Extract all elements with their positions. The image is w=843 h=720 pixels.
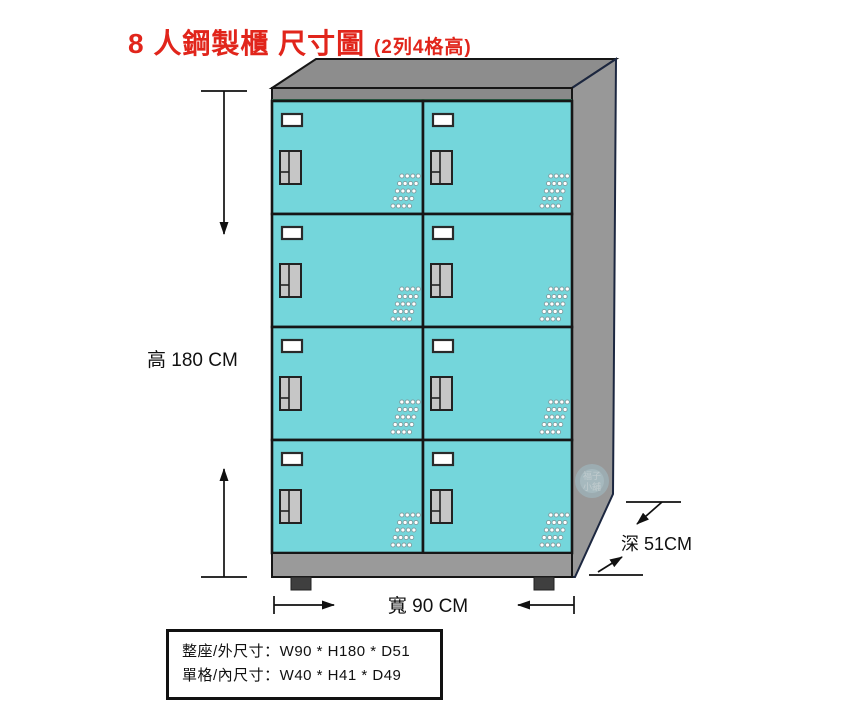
vent-hole xyxy=(399,196,403,200)
vent-hole xyxy=(403,181,407,185)
vent-hole xyxy=(411,287,415,291)
vent-hole xyxy=(540,204,544,208)
vent-hole xyxy=(391,204,395,208)
vent-hole xyxy=(555,415,559,419)
vent-hole xyxy=(548,535,552,539)
vent-hole xyxy=(561,528,565,532)
vent-hole xyxy=(403,407,407,411)
vent-hole xyxy=(395,302,399,306)
vent-hole xyxy=(391,543,395,547)
door-handle xyxy=(431,490,452,523)
vent-hole xyxy=(405,513,409,517)
vent-hole xyxy=(561,415,565,419)
vent-hole xyxy=(552,407,556,411)
foot-left xyxy=(291,577,311,590)
watermark-line-1: 福子 xyxy=(583,470,601,481)
vent-hole xyxy=(416,513,420,517)
vent-hole xyxy=(549,287,553,291)
vent-hole xyxy=(406,189,410,193)
vent-hole xyxy=(407,317,411,321)
vent-hole xyxy=(414,181,418,185)
vent-hole xyxy=(402,317,406,321)
vent-hole xyxy=(553,422,557,426)
vent-hole xyxy=(403,520,407,524)
side-panel xyxy=(572,59,616,577)
vent-hole xyxy=(411,400,415,404)
vent-hole xyxy=(395,415,399,419)
vent-hole xyxy=(550,302,554,306)
vent-hole xyxy=(406,415,410,419)
width-label: 寬 90 CM xyxy=(388,595,468,617)
vent-hole xyxy=(542,309,546,313)
vent-hole xyxy=(411,513,415,517)
vent-hole xyxy=(400,287,404,291)
vent-hole xyxy=(565,174,569,178)
vent-hole xyxy=(407,204,411,208)
vent-hole xyxy=(404,422,408,426)
vent-hole xyxy=(563,294,567,298)
vent-hole xyxy=(391,317,395,321)
name-card-slot xyxy=(282,114,302,126)
vent-hole xyxy=(549,400,553,404)
vent-hole xyxy=(398,407,402,411)
vent-hole xyxy=(399,535,403,539)
vent-hole xyxy=(414,407,418,411)
door-handle xyxy=(280,264,301,297)
vent-hole xyxy=(563,520,567,524)
vent-hole xyxy=(410,196,414,200)
vent-hole xyxy=(414,294,418,298)
vent-hole xyxy=(551,543,555,547)
watermark-seal: 福子 小舖 xyxy=(575,464,609,498)
vent-hole xyxy=(561,189,565,193)
vent-hole xyxy=(404,309,408,313)
vent-hole xyxy=(405,287,409,291)
vent-hole xyxy=(560,513,564,517)
vent-hole xyxy=(555,189,559,193)
foot-right xyxy=(534,577,554,590)
vent-hole xyxy=(559,309,563,313)
vent-hole xyxy=(551,204,555,208)
vent-hole xyxy=(411,174,415,178)
vent-hole xyxy=(559,535,563,539)
base-plinth xyxy=(272,553,572,577)
vent-hole xyxy=(410,309,414,313)
vent-hole xyxy=(540,543,544,547)
vent-hole xyxy=(556,317,560,321)
vent-hole xyxy=(548,422,552,426)
door-handle xyxy=(431,151,452,184)
vent-hole xyxy=(414,520,418,524)
vent-hole xyxy=(401,415,405,419)
vent-hole xyxy=(560,400,564,404)
vent-hole xyxy=(416,400,420,404)
vent-hole xyxy=(560,287,564,291)
vent-hole xyxy=(402,204,406,208)
vent-hole xyxy=(402,430,406,434)
door-handle xyxy=(280,377,301,410)
vent-hole xyxy=(544,189,548,193)
vent-hole xyxy=(556,430,560,434)
vent-hole xyxy=(563,181,567,185)
vent-hole xyxy=(410,535,414,539)
spec-line-outer: 整座/外尺寸：W90 * H180 * D51 xyxy=(182,640,440,664)
vent-hole xyxy=(550,189,554,193)
name-card-slot xyxy=(433,227,453,239)
watermark-line-2: 小舖 xyxy=(583,481,601,492)
vent-hole xyxy=(393,196,397,200)
vent-hole xyxy=(547,407,551,411)
vent-hole xyxy=(396,430,400,434)
vent-hole xyxy=(552,181,556,185)
name-card-slot xyxy=(282,227,302,239)
vent-hole xyxy=(409,181,413,185)
vent-hole xyxy=(393,309,397,313)
vent-hole xyxy=(554,174,558,178)
name-card-slot xyxy=(433,453,453,465)
vent-hole xyxy=(551,317,555,321)
vent-hole xyxy=(540,430,544,434)
vent-hole xyxy=(549,513,553,517)
vent-hole xyxy=(405,400,409,404)
vent-hole xyxy=(556,204,560,208)
vent-hole xyxy=(549,174,553,178)
vent-hole xyxy=(553,309,557,313)
vent-hole xyxy=(548,309,552,313)
vent-hole xyxy=(554,400,558,404)
vent-hole xyxy=(398,294,402,298)
vent-hole xyxy=(550,528,554,532)
vent-hole xyxy=(398,181,402,185)
height-label: 高 180 CM xyxy=(147,349,238,371)
vent-hole xyxy=(404,535,408,539)
vent-hole xyxy=(406,528,410,532)
vent-hole xyxy=(558,181,562,185)
vent-hole xyxy=(545,543,549,547)
vent-hole xyxy=(555,528,559,532)
vent-hole xyxy=(553,196,557,200)
vent-hole xyxy=(559,422,563,426)
vent-hole xyxy=(412,528,416,532)
vent-hole xyxy=(565,287,569,291)
name-card-slot xyxy=(433,340,453,352)
vent-hole xyxy=(542,422,546,426)
vent-hole xyxy=(560,174,564,178)
vent-hole xyxy=(550,415,554,419)
name-card-slot xyxy=(433,114,453,126)
vent-hole xyxy=(395,528,399,532)
vent-hole xyxy=(544,302,548,306)
vent-hole xyxy=(393,535,397,539)
vent-hole xyxy=(556,543,560,547)
vent-hole xyxy=(400,513,404,517)
door-handle xyxy=(280,151,301,184)
top-face xyxy=(272,59,616,88)
vent-hole xyxy=(545,317,549,321)
vent-hole xyxy=(396,317,400,321)
vent-hole xyxy=(405,174,409,178)
height-dimension xyxy=(201,91,247,577)
vent-hole xyxy=(565,513,569,517)
vent-hole xyxy=(396,543,400,547)
vent-hole xyxy=(542,535,546,539)
vent-hole xyxy=(406,302,410,306)
door-handle xyxy=(431,377,452,410)
depth-label: 深 51CM xyxy=(621,534,692,554)
spec-line-inner: 單格/內尺寸：W40 * H41 * D49 xyxy=(182,664,440,688)
name-card-slot xyxy=(282,340,302,352)
vent-hole xyxy=(398,520,402,524)
vent-hole xyxy=(416,174,420,178)
vent-hole xyxy=(554,513,558,517)
cabinet-diagram: 福子 小舖 高 180 CM 寬 90 CM 深 51CM xyxy=(0,0,843,720)
vent-hole xyxy=(401,302,405,306)
vent-hole xyxy=(396,204,400,208)
vent-hole xyxy=(409,407,413,411)
vent-hole xyxy=(400,174,404,178)
depth-upper-arrow xyxy=(637,502,662,524)
vent-hole xyxy=(412,415,416,419)
depth-lower-arrow xyxy=(598,557,622,572)
vent-hole xyxy=(544,415,548,419)
vent-hole xyxy=(558,294,562,298)
vent-hole xyxy=(403,294,407,298)
vent-hole xyxy=(547,181,551,185)
vent-hole xyxy=(542,196,546,200)
name-card-slot xyxy=(282,453,302,465)
vent-hole xyxy=(553,535,557,539)
vent-hole xyxy=(551,430,555,434)
vent-hole xyxy=(540,317,544,321)
vent-hole xyxy=(395,189,399,193)
vent-hole xyxy=(412,302,416,306)
vent-hole xyxy=(563,407,567,411)
vent-hole xyxy=(391,430,395,434)
vent-hole xyxy=(400,400,404,404)
vent-hole xyxy=(401,189,405,193)
vent-hole xyxy=(399,309,403,313)
vent-hole xyxy=(401,528,405,532)
vent-hole xyxy=(412,189,416,193)
vent-hole xyxy=(555,302,559,306)
vent-hole xyxy=(410,422,414,426)
vent-hole xyxy=(402,543,406,547)
vent-hole xyxy=(407,430,411,434)
vent-hole xyxy=(561,302,565,306)
vent-hole xyxy=(407,543,411,547)
vent-hole xyxy=(554,287,558,291)
vent-hole xyxy=(416,287,420,291)
vent-hole xyxy=(545,430,549,434)
vent-hole xyxy=(559,196,563,200)
door-handle xyxy=(280,490,301,523)
spec-box: 整座/外尺寸：W90 * H180 * D51 單格/內尺寸：W40 * H41… xyxy=(166,629,443,700)
vent-hole xyxy=(544,528,548,532)
vent-hole xyxy=(552,294,556,298)
vent-hole xyxy=(552,520,556,524)
doors-layer xyxy=(272,101,572,553)
vent-hole xyxy=(409,294,413,298)
vent-hole xyxy=(548,196,552,200)
vent-hole xyxy=(565,400,569,404)
vent-hole xyxy=(547,520,551,524)
vent-hole xyxy=(393,422,397,426)
vent-hole xyxy=(547,294,551,298)
vent-hole xyxy=(409,520,413,524)
door-handle xyxy=(431,264,452,297)
vent-hole xyxy=(558,407,562,411)
vent-hole xyxy=(558,520,562,524)
vent-hole xyxy=(545,204,549,208)
vent-hole xyxy=(399,422,403,426)
vent-hole xyxy=(404,196,408,200)
